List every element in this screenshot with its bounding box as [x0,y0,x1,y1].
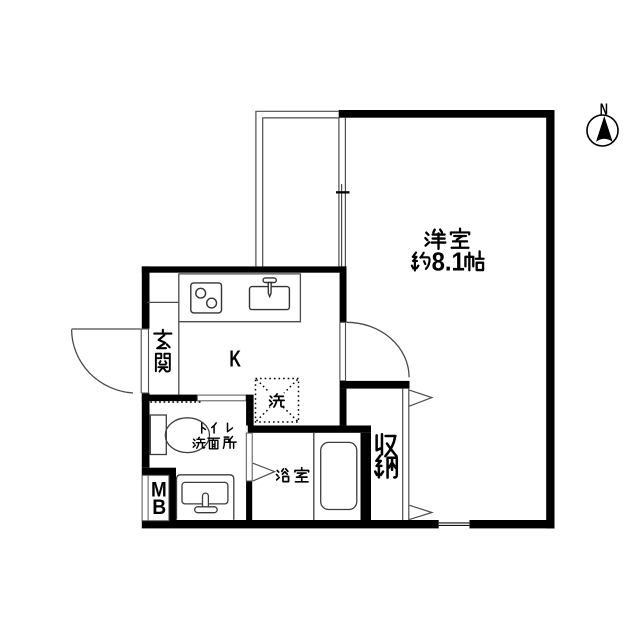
svg-text:B: B [152,496,166,519]
svg-text:8.1: 8.1 [432,247,465,276]
svg-text:K: K [229,347,241,373]
